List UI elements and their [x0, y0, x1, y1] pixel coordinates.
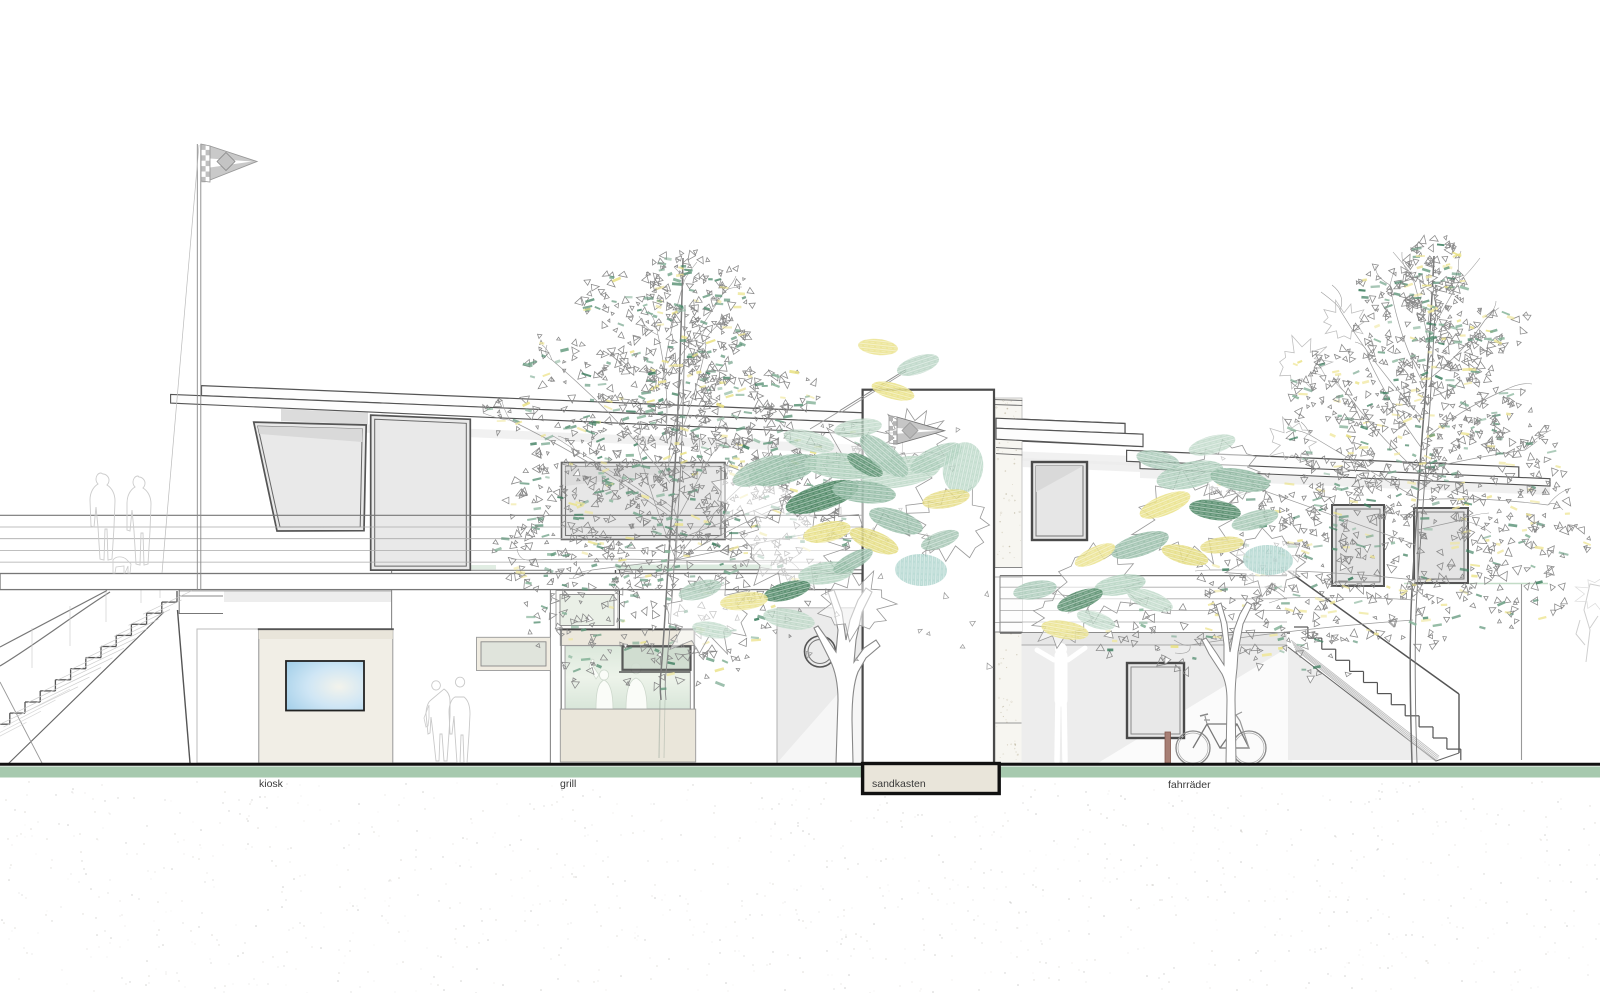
svg-text:fahrräder: fahrräder: [1168, 779, 1211, 791]
svg-text:kiosk: kiosk: [259, 778, 284, 790]
svg-text:sandkasten: sandkasten: [872, 778, 926, 790]
svg-text:grill: grill: [560, 778, 576, 790]
